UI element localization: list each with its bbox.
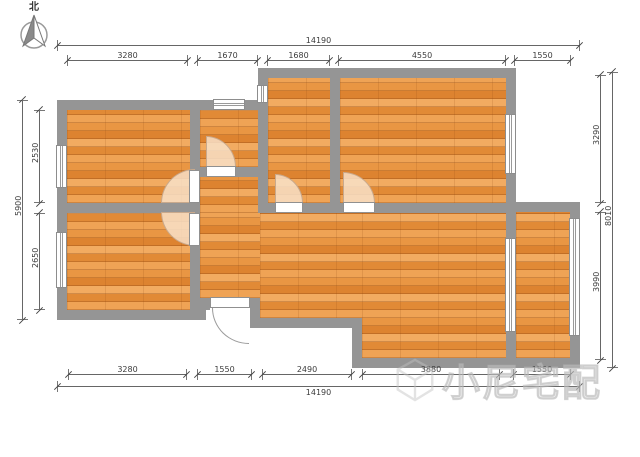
dimension-segment: 3280 (68, 366, 187, 378)
dimension-overall-right: 8010 (604, 72, 616, 368)
door-leaf (206, 166, 236, 177)
window-symbol (569, 218, 580, 336)
dimension-segment: 1680 (267, 52, 330, 64)
dimension-segment: 3880 (362, 366, 500, 378)
dimension-segment: 1550 (514, 52, 571, 64)
north-arrow: 北 (14, 2, 54, 55)
window-symbol (56, 145, 67, 188)
dimension-segment: 1550 (197, 366, 252, 378)
dimension-overall-left: 5900 (14, 100, 26, 320)
dimension-segment: 3290 (592, 75, 604, 203)
dimension-label: 1670 (197, 52, 258, 60)
window-symbol (505, 114, 516, 174)
dimension-label: 1680 (267, 52, 330, 60)
dimension-overall-bottom: 14190 (57, 378, 580, 390)
dimension-segment: 1670 (197, 52, 258, 64)
dimension-label: 1550 (197, 366, 252, 374)
dimension-overall-top: 14190 (57, 37, 580, 49)
window-symbol (213, 99, 245, 110)
dimension-label: 14190 (57, 37, 580, 45)
wall-segment (330, 78, 340, 203)
room-floor (200, 213, 262, 298)
window-symbol (257, 85, 268, 103)
compass-icon (16, 13, 52, 51)
dimension-segment: 2490 (262, 366, 352, 378)
dimension-label: 14190 (57, 389, 580, 397)
north-label: 北 (14, 2, 54, 13)
room-floor (362, 213, 506, 358)
window-symbol (56, 232, 67, 288)
room-floor (200, 177, 258, 213)
wall-segment (250, 298, 260, 328)
dimension-segment: 2650 (31, 213, 43, 310)
dimension-label: 3880 (362, 366, 500, 374)
dimension-segment: 2530 (31, 110, 43, 203)
wall-segment (258, 68, 516, 78)
room-floor (516, 212, 570, 358)
dimension-segment: 1550 (513, 366, 571, 378)
dimension-label: 1550 (514, 52, 571, 60)
door-leaf (275, 202, 303, 213)
door-leaf (343, 202, 375, 213)
dimension-label: 3280 (68, 366, 187, 374)
dimension-segment: 3990 (592, 212, 604, 360)
dimension-label: 1550 (513, 366, 571, 374)
dimension-label: 3280 (67, 52, 188, 60)
room-floor (260, 213, 362, 318)
door-leaf (189, 170, 200, 203)
dimension-segment: 3280 (67, 52, 188, 64)
dimension-segment: 4550 (338, 52, 506, 64)
door-leaf (189, 213, 200, 246)
wall-segment (57, 310, 206, 320)
window-symbol (505, 238, 516, 332)
entry-door-swing-arc (212, 308, 249, 344)
wall-segment (506, 202, 580, 212)
dimension-label: 4550 (338, 52, 506, 60)
floor-plan-canvas: 北 (0, 0, 640, 457)
wall-segment (250, 318, 362, 328)
entry-door-leaf (210, 297, 250, 308)
dimension-label: 2490 (262, 366, 352, 374)
wall-segment (190, 110, 200, 310)
